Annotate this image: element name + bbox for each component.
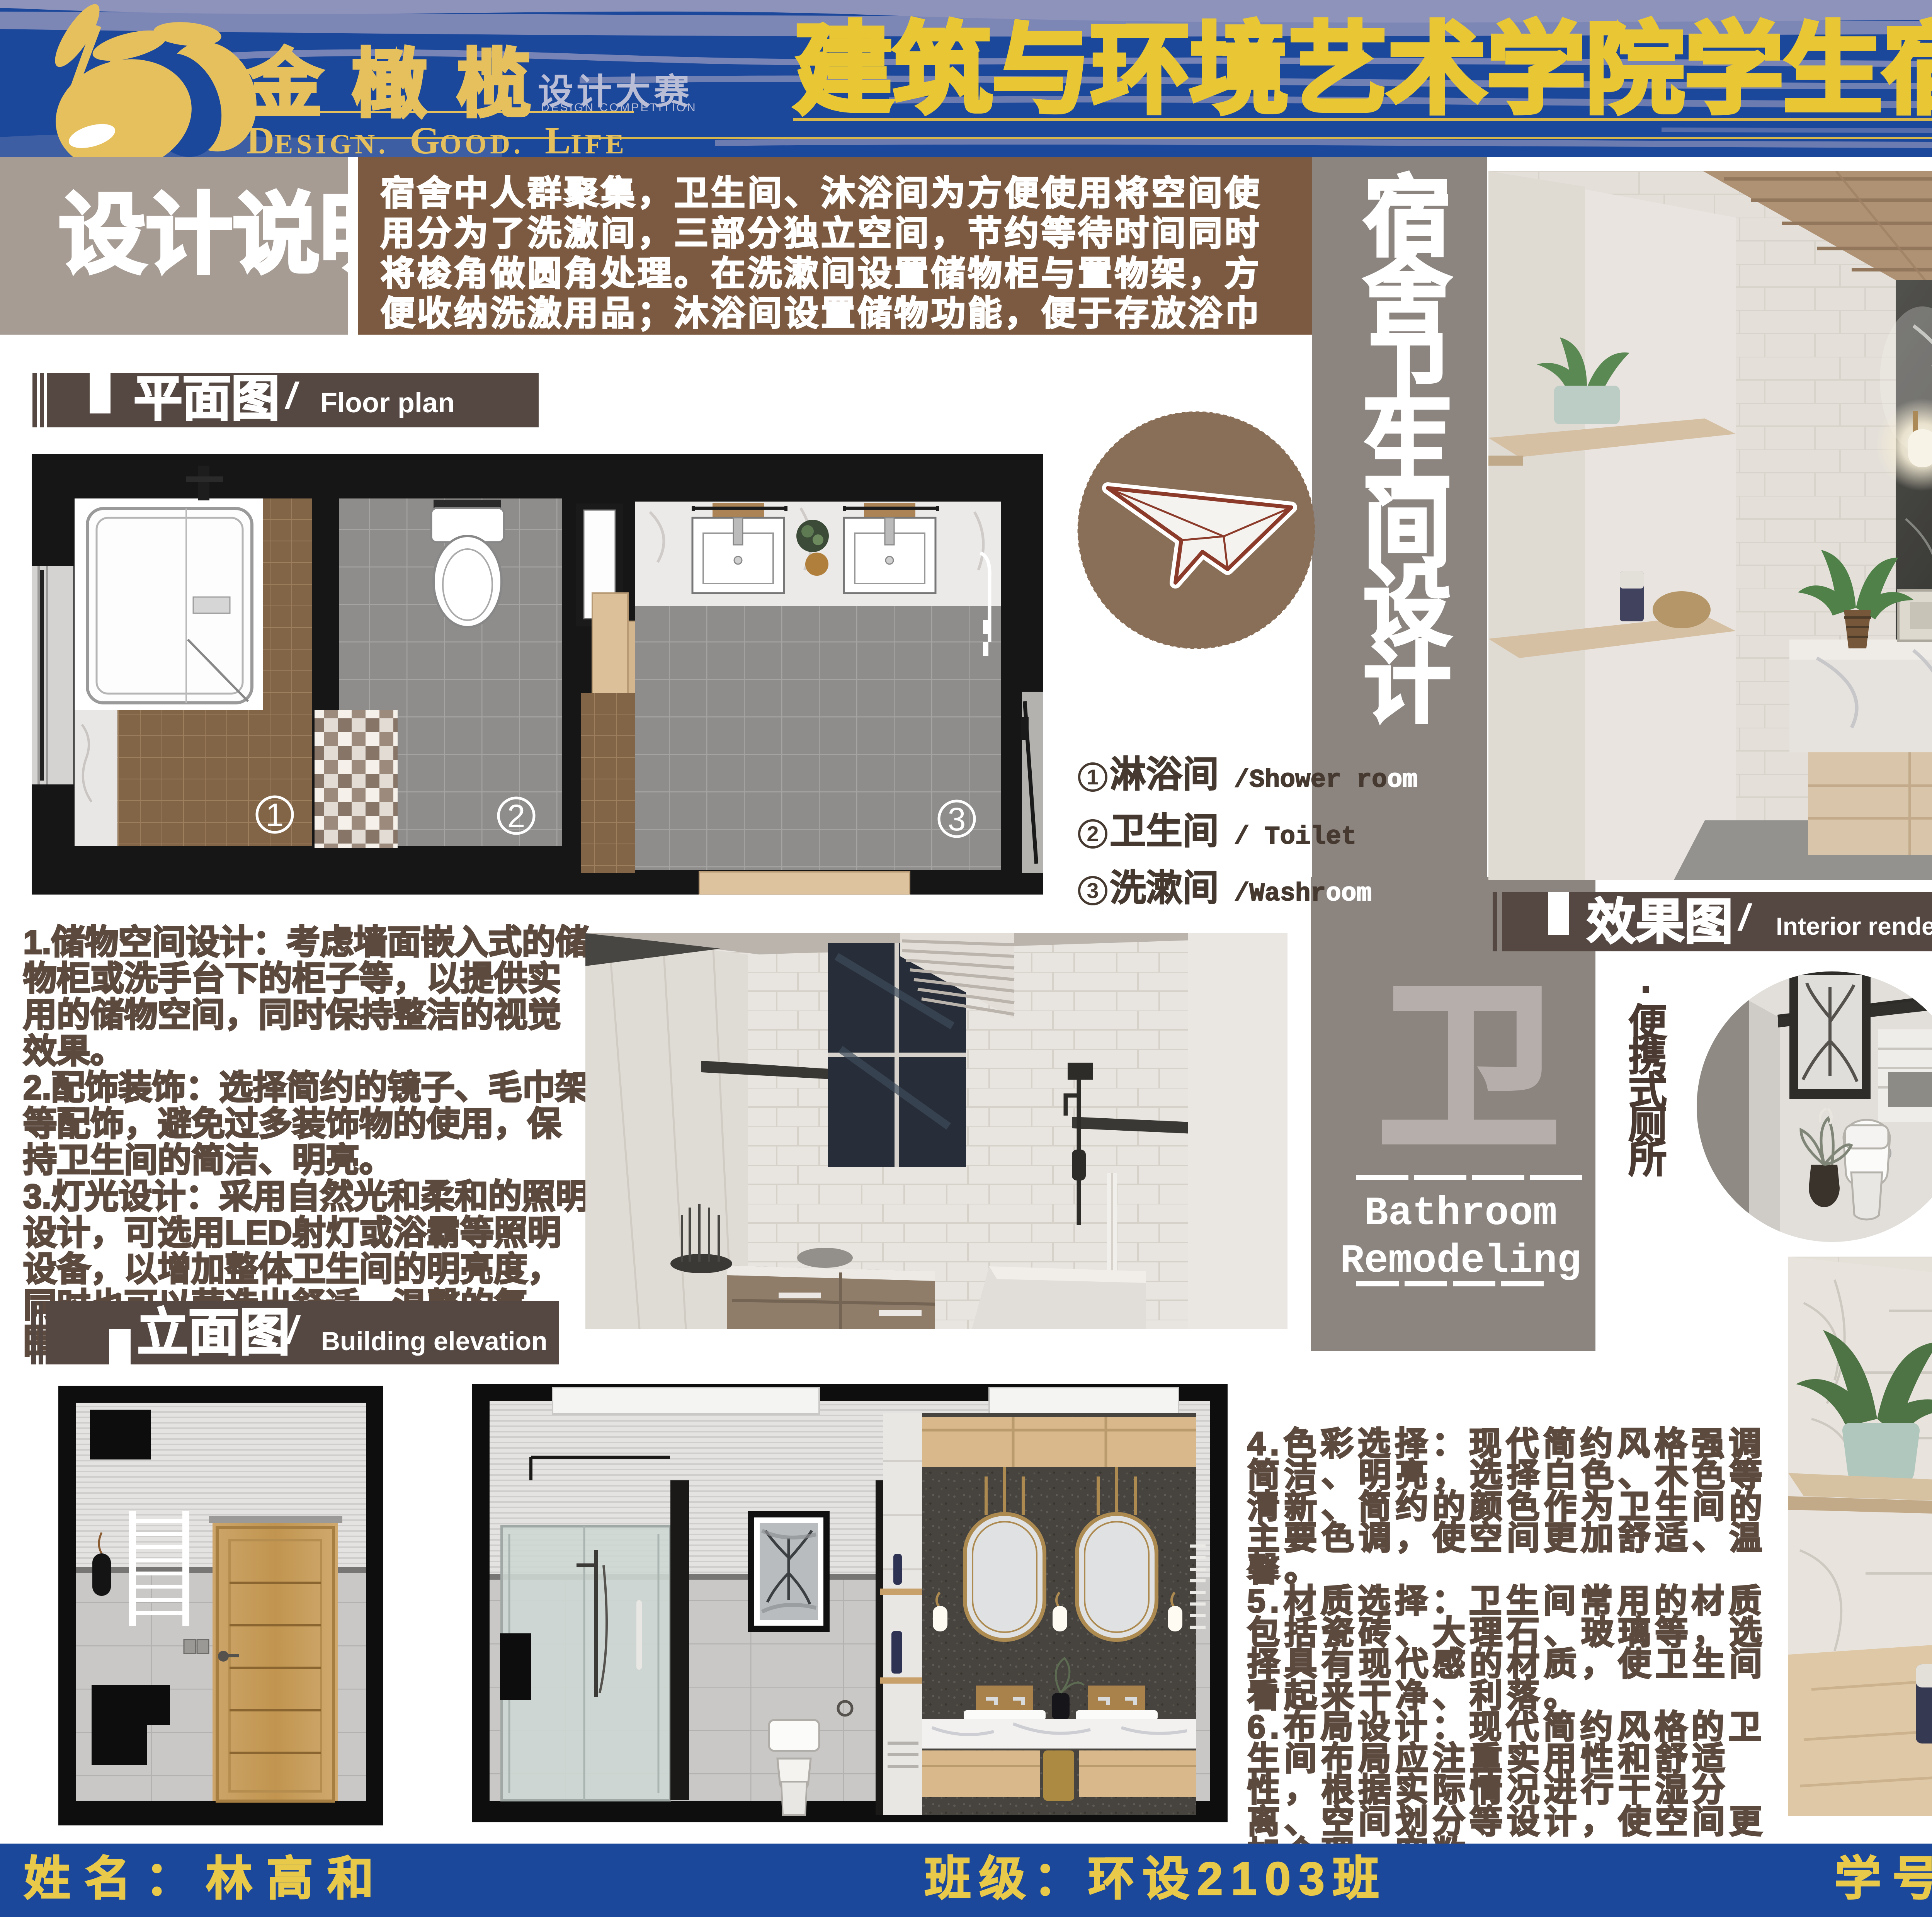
svg-text:2: 2 bbox=[507, 798, 526, 834]
svg-text:3: 3 bbox=[948, 801, 966, 837]
svg-text:1: 1 bbox=[266, 797, 284, 833]
